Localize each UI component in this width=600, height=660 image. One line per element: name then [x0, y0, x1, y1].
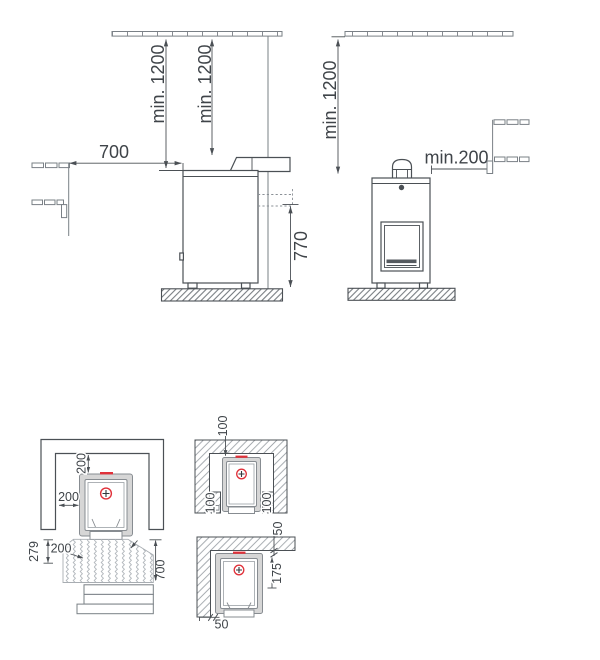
floor-protection-plate — [348, 288, 455, 300]
heater-plan — [216, 553, 263, 617]
dimension-label-side: 200 — [58, 490, 79, 504]
dimension-label-connection-height: 770 — [291, 231, 311, 261]
plan-view-alcove: 100 100 100 — [195, 416, 287, 514]
dimension-label-left: 100 — [204, 493, 218, 514]
stove-foot — [188, 283, 197, 288]
heater-front-lip — [224, 610, 254, 617]
dimension-label-front-leader: 200 — [51, 542, 72, 556]
dimension-label-rear: 100 — [216, 416, 230, 437]
door-handle-bar — [387, 260, 417, 264]
bench-left — [32, 163, 70, 236]
ceiling — [345, 32, 513, 37]
dimension-label-rear: 200 — [75, 453, 89, 474]
side-view-left: min. 1200 min. 1200 700 — [32, 32, 311, 302]
dimension-label-stove-to-ceiling: min. 1200 — [320, 60, 340, 139]
dimension-label-rear: 50 — [271, 522, 285, 536]
stove-foot — [420, 283, 428, 288]
floor-protection-plate — [162, 289, 283, 301]
ceiling — [112, 32, 282, 37]
heater-plan — [80, 473, 133, 539]
dimension-label-stove-to-ceiling: min. 1200 — [195, 44, 215, 123]
heater-front-lip — [90, 532, 122, 540]
dimension-label-right: 100 — [260, 493, 274, 514]
steps — [77, 585, 153, 614]
dimension-label-side: 50 — [215, 618, 229, 632]
heater-front-lip — [229, 507, 255, 514]
stove-foot — [377, 283, 385, 288]
stove-front-view — [372, 160, 430, 289]
plan-view-corner: 50 175 50 — [197, 522, 295, 632]
dimension-label-flue-to-ceiling: min. 1200 — [148, 44, 168, 123]
front-view-right: min. 1200 min.200 — [320, 32, 529, 301]
installation-clearance-diagram: min. 1200 min. 1200 700 — [0, 0, 600, 660]
stove-side-view — [180, 171, 258, 289]
dimension-label-bench-to-stove: 700 — [99, 142, 129, 162]
stove-door — [381, 222, 423, 271]
control-knob — [399, 185, 404, 190]
floor-protection-area — [63, 539, 153, 582]
flue-collar — [393, 160, 412, 179]
diagram-canvas: min. 1200 min. 1200 700 — [0, 0, 600, 660]
stove-foot — [242, 283, 251, 288]
flue-duct — [230, 158, 290, 172]
heater-plan — [223, 457, 261, 514]
dimension-label-front-depth: 700 — [154, 560, 168, 581]
dimension-label-stove-to-bench: min.200 — [424, 148, 488, 168]
plan-view-main: 200 200 279 200 700 — [27, 440, 168, 614]
bench-right — [487, 120, 529, 174]
dimension-label-front-left: 279 — [27, 541, 41, 562]
dimension-label-offset: 175 — [270, 563, 284, 584]
